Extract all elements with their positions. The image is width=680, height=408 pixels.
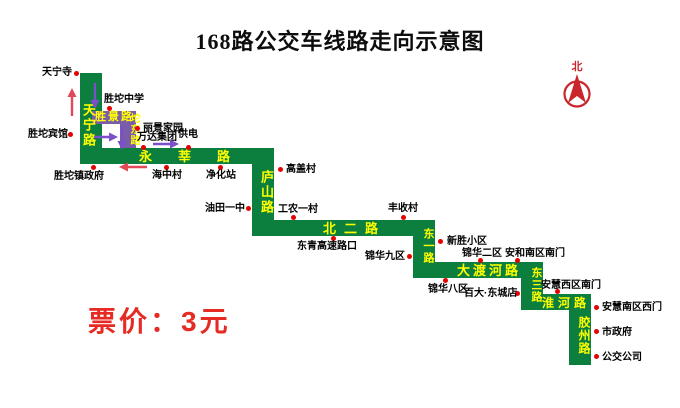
bus-stop-dot: [91, 165, 96, 170]
bus-stop-label: 供电: [178, 129, 198, 140]
road-name-label: 大渡河路: [457, 264, 521, 278]
bus-stop-label: 胜坨中学: [104, 94, 144, 105]
bus-stop-label: 锦华二区: [462, 248, 502, 259]
bus-stop-label: 市政府: [602, 327, 632, 338]
bus-stop-label: 高盖村: [286, 164, 316, 175]
direction-arrow-down-icon: [89, 82, 101, 110]
road-name-label: 胶州路: [574, 316, 590, 355]
bus-stop-dot: [407, 254, 412, 259]
bus-stop-dot: [438, 239, 443, 244]
bus-stop-label: 东青高速路口: [297, 241, 357, 252]
bus-stop-label: 油田一中: [205, 203, 245, 214]
bus-stop-dot: [164, 165, 169, 170]
bus-stop-label: 安和南区南门: [505, 248, 565, 259]
bus-stop-label: 锦华八区: [428, 284, 468, 295]
bus-stop-dot: [107, 106, 112, 111]
bus-stop-dot: [135, 126, 140, 131]
compass-icon: [558, 73, 596, 113]
bus-stop-dot: [594, 329, 599, 334]
bus-stop-label: 百大·东城店: [464, 288, 517, 299]
bus-stop-label: 公交公司: [602, 352, 642, 363]
bus-stop-dot: [401, 215, 406, 220]
direction-arrow-left-icon: [118, 161, 148, 173]
bus-stop-label: 锦华九区: [365, 251, 405, 262]
bus-stop-label: 胜坨镇政府: [54, 171, 104, 182]
page-title: 168路公交车线路走向示意图: [0, 24, 680, 56]
bus-stop-dot: [331, 236, 336, 241]
bus-stop-dot: [68, 132, 73, 137]
direction-arrow-down-icon: [116, 125, 128, 151]
bus-stop-label: 丰收村: [388, 203, 418, 214]
bus-stop-dot: [278, 167, 283, 172]
road-name-label: 北二路: [323, 222, 386, 236]
bus-stop-label: 工农一村: [278, 204, 318, 215]
bus-stop-dot: [291, 215, 296, 220]
bus-stop-label: 新胜小区: [447, 236, 487, 247]
road-name-label: 淮河路: [542, 297, 590, 310]
direction-arrow-right-icon: [152, 138, 180, 150]
north-label: 北: [558, 61, 596, 73]
bus-stop-dot: [443, 278, 448, 283]
bus-stop-dot: [186, 145, 191, 150]
bus-stop-label: 净化站: [206, 170, 236, 181]
bus-stop-dot: [141, 145, 146, 150]
route-diagram: 168路公交车线路走向示意图 北 票价：3元 天宁路胜景路坨东路永莘路庐山路北二…: [0, 0, 680, 408]
bus-stop-label: 安慧西区南门: [541, 280, 601, 291]
direction-arrow-up-icon: [66, 87, 78, 117]
compass: 北: [558, 61, 596, 118]
bus-stop-label: 胜坨宾馆: [28, 129, 68, 140]
road-name-label: 东一路: [418, 228, 433, 264]
road-name-label: 东三路: [526, 267, 541, 303]
bus-stop-dot: [218, 165, 223, 170]
bus-stop-label: 天宁寺: [42, 67, 72, 78]
bus-stop-dot: [594, 305, 599, 310]
road-name-label: 庐山路: [256, 170, 273, 215]
bus-stop-label: 海中村: [152, 170, 182, 181]
bus-stop-label: 安慧南区西门: [602, 302, 662, 313]
bus-stop-dot: [74, 71, 79, 76]
road-name-label: 永莘路: [139, 150, 256, 164]
bus-stop-dot: [246, 206, 251, 211]
fare-label: 票价：3元: [88, 300, 231, 340]
bus-stop-dot: [594, 354, 599, 359]
